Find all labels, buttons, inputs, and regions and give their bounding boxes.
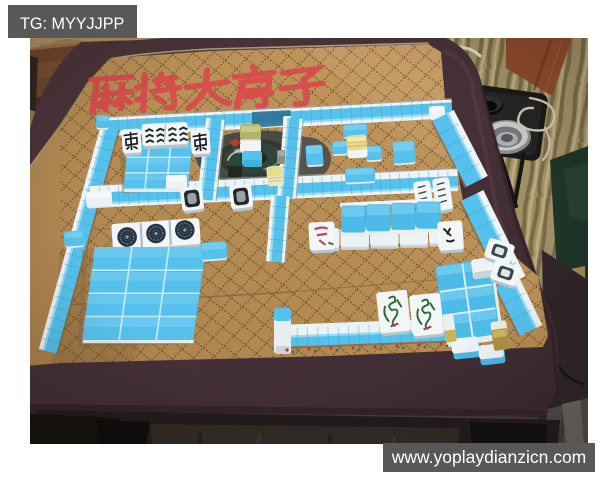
svg-text:TG: MYYJJPP: TG: MYYJJPP <box>20 15 124 33</box>
svg-text:www.yoplaydianzicn.com: www.yoplaydianzicn.com <box>391 447 587 467</box>
